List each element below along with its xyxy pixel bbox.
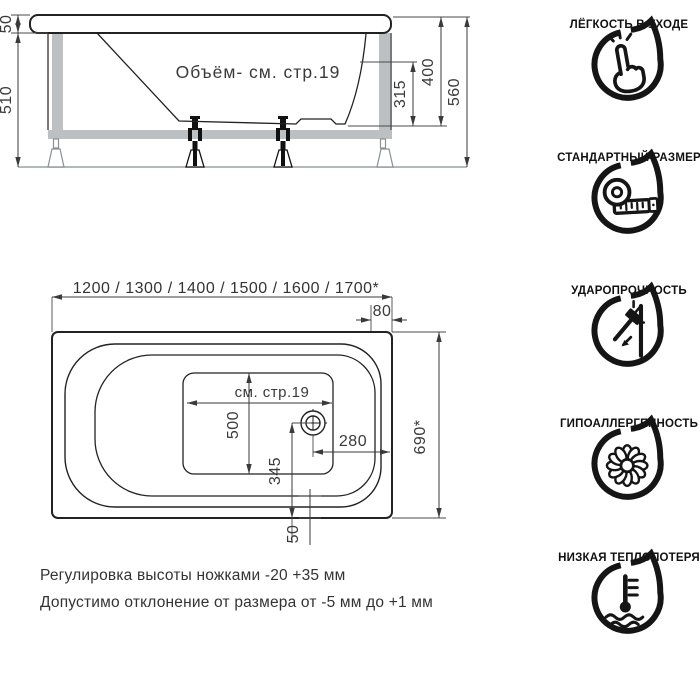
footnote-leg-adjustment: Регулировка высоты ножками -20 +35 мм: [40, 562, 433, 589]
feature-easy-care: ЛЁГКОСТЬ В УХОДЕ: [558, 16, 700, 31]
footnotes: Регулировка высоты ножками -20 +35 мм До…: [40, 562, 433, 616]
feature-hypoallergenic: ГИПОАЛЛЕРГЕННОСТЬ: [558, 415, 700, 430]
flower-icon: [583, 415, 675, 507]
feature-impact-resistance: УДАРОПРОЧНОСТЬ: [558, 282, 700, 297]
side-view-drawing: 50 510 315 400 560 Объём- см. стр.19: [0, 0, 500, 185]
feature-list: ЛЁГКОСТЬ В УХОДЕ СТАНДАРТНЫЙ РАЗМЕР: [558, 0, 700, 700]
feature-standard-size: СТАНДАРТНЫЙ РАЗМЕР: [558, 149, 700, 164]
dim-rim-gap: 50: [285, 525, 302, 544]
volume-note: Объём- см. стр.19: [176, 62, 341, 82]
feature-low-heat-loss: НИЗКАЯ ТЕПЛОПОТЕРЯ: [558, 549, 700, 564]
tub-rim-side: [30, 15, 391, 33]
dim-drain-from-end: 280: [339, 433, 367, 450]
see-page-note: см. стр.19: [235, 384, 310, 401]
thermometer-icon: [583, 549, 675, 641]
dim-drain-offset: 345: [267, 457, 284, 485]
tape-measure-icon: [583, 149, 675, 241]
top-view-drawing: 1200 / 1300 / 1400 / 1500 / 1600 / 1700*…: [30, 275, 480, 565]
dim-width: 690*: [412, 420, 429, 455]
dim-frame-height: 510: [0, 86, 15, 114]
tub-outer-rect: [52, 332, 392, 518]
dim-total-height: 560: [446, 78, 463, 106]
hand-click-icon: [583, 16, 675, 108]
dim-depth: 400: [420, 58, 437, 86]
hammer-impact-icon: [583, 282, 675, 374]
dim-length-options: 1200 / 1300 / 1400 / 1500 / 1600 / 1700*: [73, 280, 379, 297]
end-feet: [48, 139, 393, 167]
dim-inner-depth: 315: [392, 80, 409, 108]
dim-rim-thickness: 50: [0, 15, 15, 34]
bathtub-spec-sheet: 50 510 315 400 560 Объём- см. стр.19 120…: [0, 0, 700, 700]
dim-bottom-width: 500: [225, 411, 242, 439]
support-frame: [48, 33, 392, 139]
footnote-size-tolerance: Допустимо отклонение от размера от -5 мм…: [40, 589, 433, 616]
dim-head-rim: 80: [373, 303, 392, 320]
